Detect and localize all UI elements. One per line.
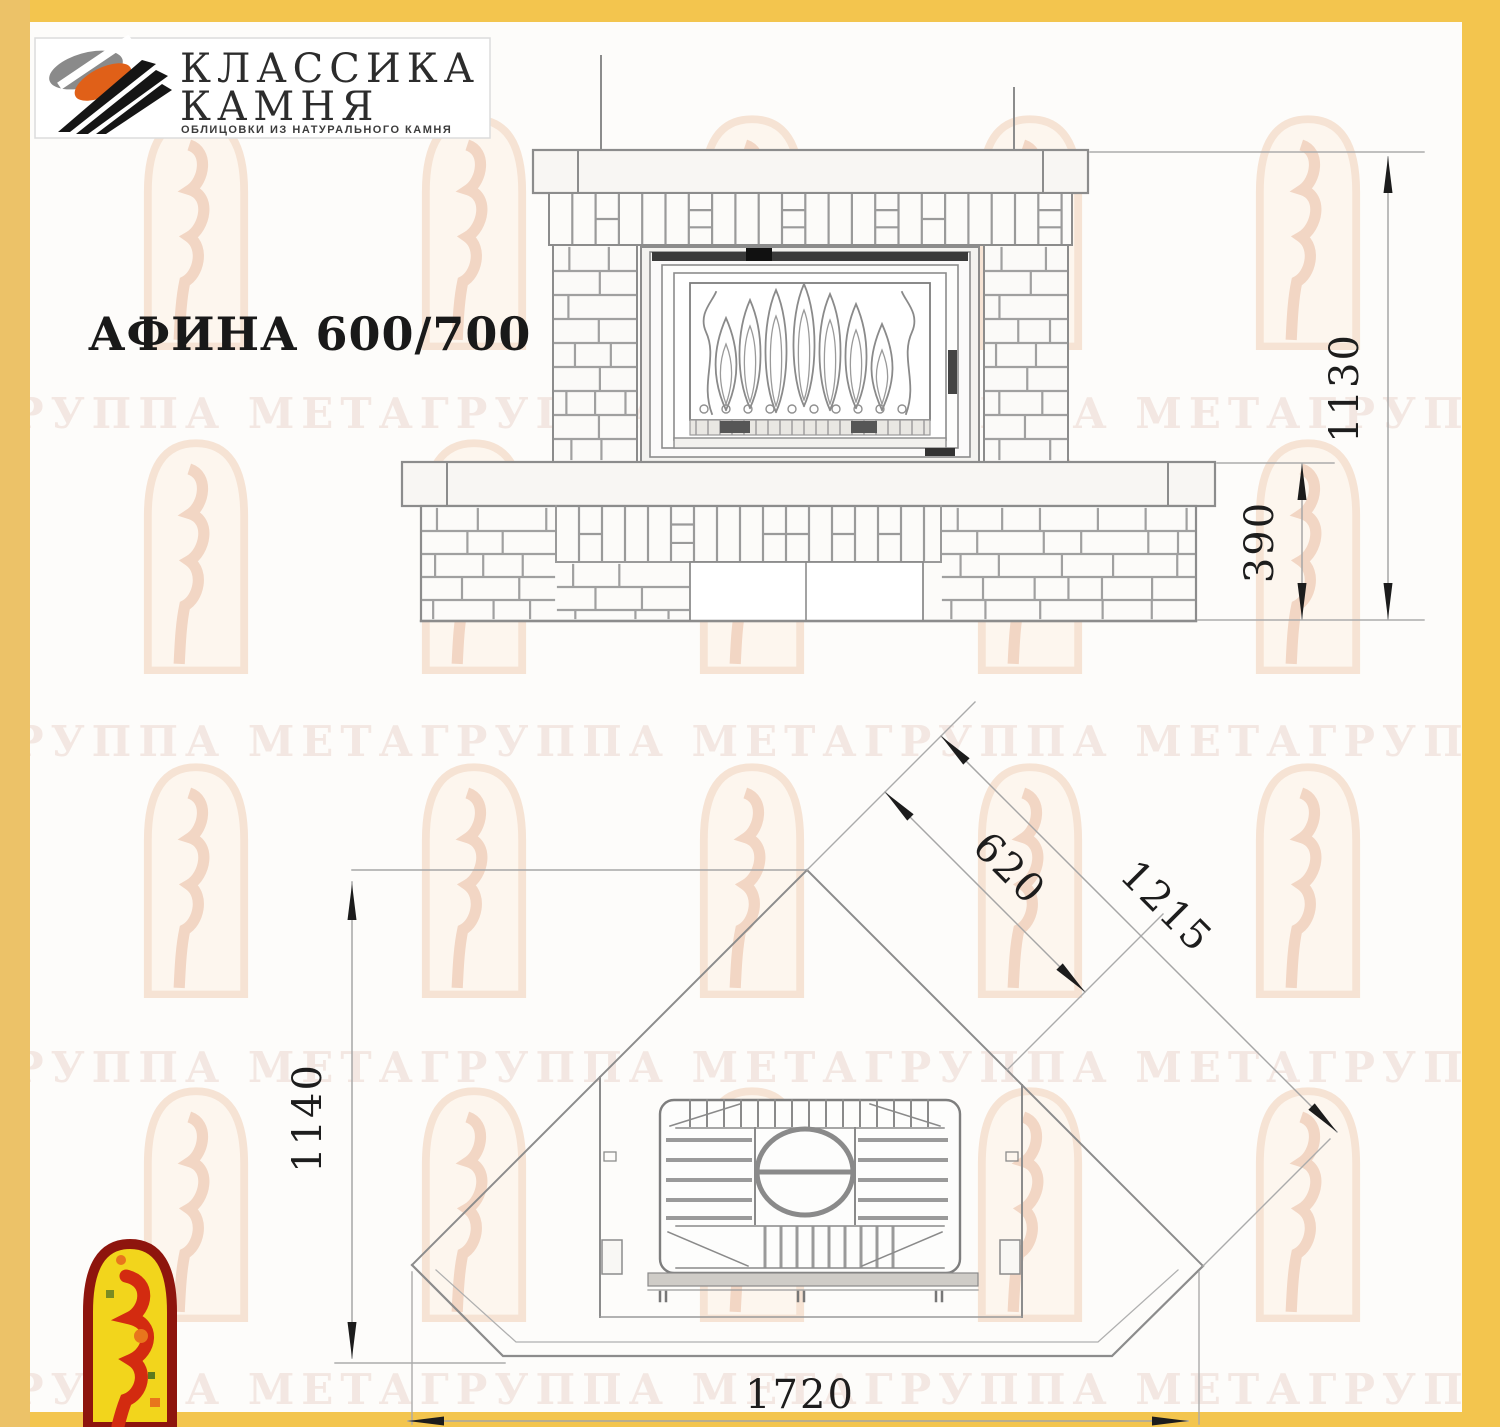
insert-brand-plate: [925, 448, 955, 456]
logo-tagline: ОБЛИЦОВКИ ИЗ НАТУРАЛЬНОГО КАМНЯ: [181, 124, 452, 136]
brick-column-left: [553, 245, 637, 462]
grate-dark-patch: [720, 421, 750, 433]
watermark-arch: [704, 767, 800, 994]
dimension-label-plinth-height: 390: [1237, 501, 1283, 583]
firebox-front: [641, 247, 979, 462]
frame-left-band: [0, 0, 30, 1427]
watermark-arch: [426, 1091, 522, 1318]
emblem-orange-dot: [134, 1329, 148, 1343]
surround-bracket-left: [602, 1240, 622, 1274]
door-handle: [948, 350, 957, 394]
corner-emblem: [88, 1244, 172, 1427]
frieze-band: [549, 193, 1072, 245]
frame-right-band: [1462, 0, 1500, 1427]
watermark-arch: [1260, 767, 1356, 994]
bench-shelf: [402, 462, 1215, 506]
dimension-label-total-height: 1130: [1322, 333, 1368, 443]
watermark-arch: [148, 443, 244, 670]
firebox-top-bar: [652, 252, 968, 261]
dimension-label-width: 1720: [745, 1372, 855, 1418]
company-logo: КЛАССИКА КАМНЯ ОБЛИЦОВКИ ИЗ НАТУРАЛЬНОГО…: [35, 35, 490, 138]
watermark-text: ГРУППА МЕТАГРУППА МЕТАГРУППА МЕТАГРУППА …: [0, 1043, 1500, 1092]
watermark-arch: [1260, 1091, 1356, 1318]
frame-top-band: [0, 0, 1500, 22]
dimension-label-depth: 1140: [285, 1063, 331, 1173]
mantel-shelf: [533, 150, 1088, 193]
watermark-arch: [148, 767, 244, 994]
hearth-strip-plan: [648, 1273, 978, 1286]
watermark-text: ГРУППА МЕТАГРУППА МЕТАГРУППА МЕТАГРУППА …: [0, 717, 1500, 766]
emblem-orange-dot: [150, 1398, 160, 1407]
grate-dark-patch: [851, 421, 877, 433]
emblem-orange-dot: [116, 1255, 126, 1265]
damper-knob: [746, 248, 772, 261]
watermark-arch: [1260, 119, 1356, 346]
surround-bracket-right: [1000, 1240, 1020, 1274]
fireplace-drawing-sheet: ГРУППА МЕТАГРУППА МЕТАГРУППА МЕТАГРУППА …: [0, 0, 1500, 1427]
door-bottom-band: [674, 438, 946, 448]
emblem-green-dot: [106, 1290, 114, 1298]
model-title: АФИНА 600/700: [88, 307, 531, 361]
emblem-green-dot: [148, 1372, 155, 1379]
watermark-arch: [426, 767, 522, 994]
